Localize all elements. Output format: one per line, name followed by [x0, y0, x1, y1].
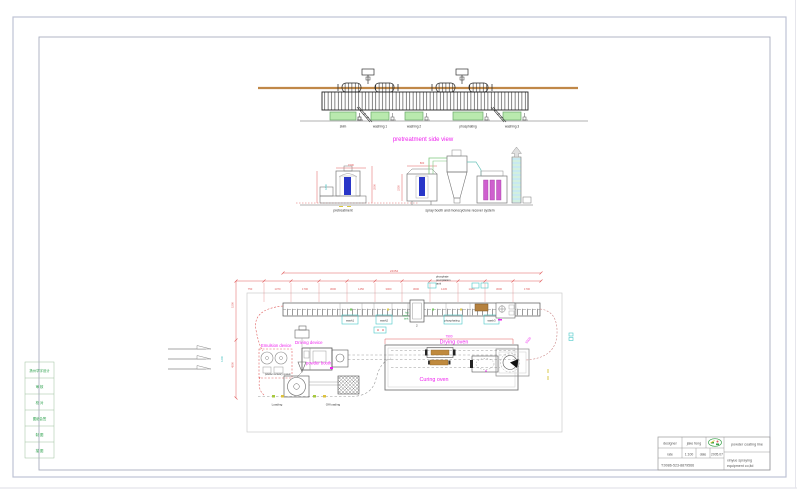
cyclone-cone	[447, 172, 467, 198]
rate-label: rate	[667, 453, 673, 457]
company-name-line1: xinyue spraying	[727, 459, 752, 463]
tank-label-washing1: washing 1	[373, 125, 388, 129]
drawing-canvas: 扬州华宇设计 审 核 校 对 图纸会签 制 图 描 图	[0, 0, 800, 493]
off-loading-label: Off loading	[326, 403, 341, 407]
driving-device: Driving device	[295, 326, 323, 347]
designer-label: designer	[663, 442, 678, 446]
dim-text: 2250	[397, 185, 401, 191]
dim-seg: 3000	[330, 287, 336, 291]
tank-washing1	[371, 112, 396, 120]
filter-cartridge	[484, 180, 489, 200]
rev-row-label: 图纸会签	[33, 416, 47, 421]
plan-view: 24354 750 1370 1700 3000 1450 3000 3000 …	[168, 269, 573, 432]
outer-border	[13, 17, 786, 477]
company-name-line2: equipment co,ltd	[727, 464, 753, 468]
exhaust-stack	[512, 157, 521, 203]
precip-label: tank	[436, 282, 442, 286]
side-view-title: pretreatment side view	[393, 137, 454, 143]
rate-value: 1:100	[685, 453, 694, 457]
rev-row-label: 审 核	[36, 384, 44, 389]
dim-seg: 1370	[275, 287, 281, 291]
filter-plan	[338, 376, 359, 394]
dim-text: 2500	[373, 184, 377, 190]
dim-seg: 1700	[524, 287, 530, 291]
tank-label-skim: skim	[340, 125, 347, 129]
rev-row-label: 扬州华宇设计	[29, 368, 50, 373]
precip-label: precipitation	[436, 278, 451, 282]
tank-phosphating	[453, 112, 490, 120]
curing-blower	[470, 356, 498, 372]
phone-number: T:0086-523-8879566	[661, 464, 694, 468]
unit-mark: 2	[416, 324, 418, 328]
stage-label-phosphating: phosphating	[444, 319, 460, 323]
precip-label: phosphate	[436, 275, 449, 279]
loading-label: Loading	[272, 403, 283, 407]
precipitation-tank	[481, 283, 488, 288]
dim-seg: 3000	[413, 287, 419, 291]
curing-oven-label: Curing oven	[419, 377, 448, 383]
unit-note: tank	[404, 318, 409, 321]
exhaust-arrow-icon	[512, 147, 522, 157]
rev-row-label: 描 图	[36, 448, 44, 453]
revision-table: 扬州华宇设计 审 核 校 对 图纸会签 制 图 描 图	[25, 362, 54, 458]
designer-name: jake feng	[686, 442, 702, 446]
pretreatment-tunnel-section	[322, 92, 528, 110]
drive-wheel-arrow-icon	[510, 359, 519, 368]
cad-drawing-sheet: 扬州华宇设计 审 核 校 对 图纸会签 制 图 描 图	[0, 0, 800, 493]
tank-label-washing3: washing 3	[505, 125, 520, 129]
pretreatment-side-view: skim washing 1 washing 2 phosphating was…	[258, 69, 588, 143]
stage-label-wash1: wash1	[346, 319, 355, 323]
oven-entry-curtain	[475, 304, 488, 311]
booth-opening	[419, 177, 425, 196]
elevation-views: 1500 2500 1800 pretreatment 800 2250	[296, 147, 533, 213]
tank-label-phosphating: phosphating	[459, 125, 477, 129]
dim-seg: 1445	[441, 287, 447, 291]
tank-label-washing2: washing 2	[407, 125, 422, 129]
filter-cartridge	[490, 180, 495, 200]
powder-booth: powder booth	[297, 348, 348, 377]
spray-booth-label: spray booth and monocyclone recover syst…	[425, 209, 494, 213]
date-label: date	[700, 453, 707, 457]
tank-section	[344, 177, 351, 195]
flow-arrows	[168, 346, 211, 370]
ovens: Drying oven Curing oven	[385, 340, 518, 391]
project-title: powder coating line	[731, 443, 763, 447]
dim-turn: 5500	[524, 336, 532, 344]
dim-text: 1800	[324, 184, 328, 190]
driving-device-label: Driving device	[295, 340, 323, 345]
date-value: 2005.07	[711, 453, 723, 457]
sheet-borders	[0, 0, 797, 488]
dim-left2: 4500	[231, 362, 235, 368]
dim-left1: 1500	[231, 302, 235, 308]
duct	[467, 162, 481, 176]
tank-washing2	[405, 112, 430, 120]
dim-seg: 1700	[302, 287, 308, 291]
stage-label-wash2: wash2	[380, 319, 389, 323]
dim-side: 1200	[220, 356, 224, 362]
dim-total: 24354	[390, 269, 399, 273]
powder-booth-label: powder booth	[306, 361, 332, 366]
dim-seg: 1450	[358, 287, 364, 291]
cyclone-body	[447, 156, 467, 172]
filter-cartridge	[497, 180, 502, 200]
powder-recovery-system: powder recovery system	[265, 373, 359, 397]
cyan-mark	[569, 333, 573, 336]
curing-burner-bar	[428, 360, 451, 365]
rev-row-label: 制 图	[36, 432, 44, 437]
stage-label-wash3: wash3	[487, 319, 496, 323]
dim-seg: 3000	[496, 287, 502, 291]
rev-row-label: 校 对	[36, 400, 44, 405]
emulsion-device-label: Emulsion device	[261, 343, 292, 348]
dim-seg: 3000	[386, 287, 392, 291]
dim-text: 1500	[348, 163, 354, 167]
spray-booth-elevation: 800 2250 spray booth and monocyclone rec…	[397, 147, 532, 213]
powder-recovery-label: powder recovery system	[265, 373, 291, 376]
cyan-mark	[569, 338, 573, 341]
dim-oven: 7900	[445, 335, 452, 339]
dim-seg: 750	[248, 287, 253, 291]
tank-washing3	[503, 112, 528, 120]
dim-text: 800	[420, 161, 425, 165]
pretreatment-elevation-label: pretreatment	[333, 209, 352, 213]
company-logo-icon	[709, 439, 722, 447]
drying-burner	[425, 348, 456, 358]
title-block: designer jake feng rate 1:100 date 2005.…	[658, 437, 770, 470]
drying-oven-label: Drying oven	[440, 340, 469, 346]
